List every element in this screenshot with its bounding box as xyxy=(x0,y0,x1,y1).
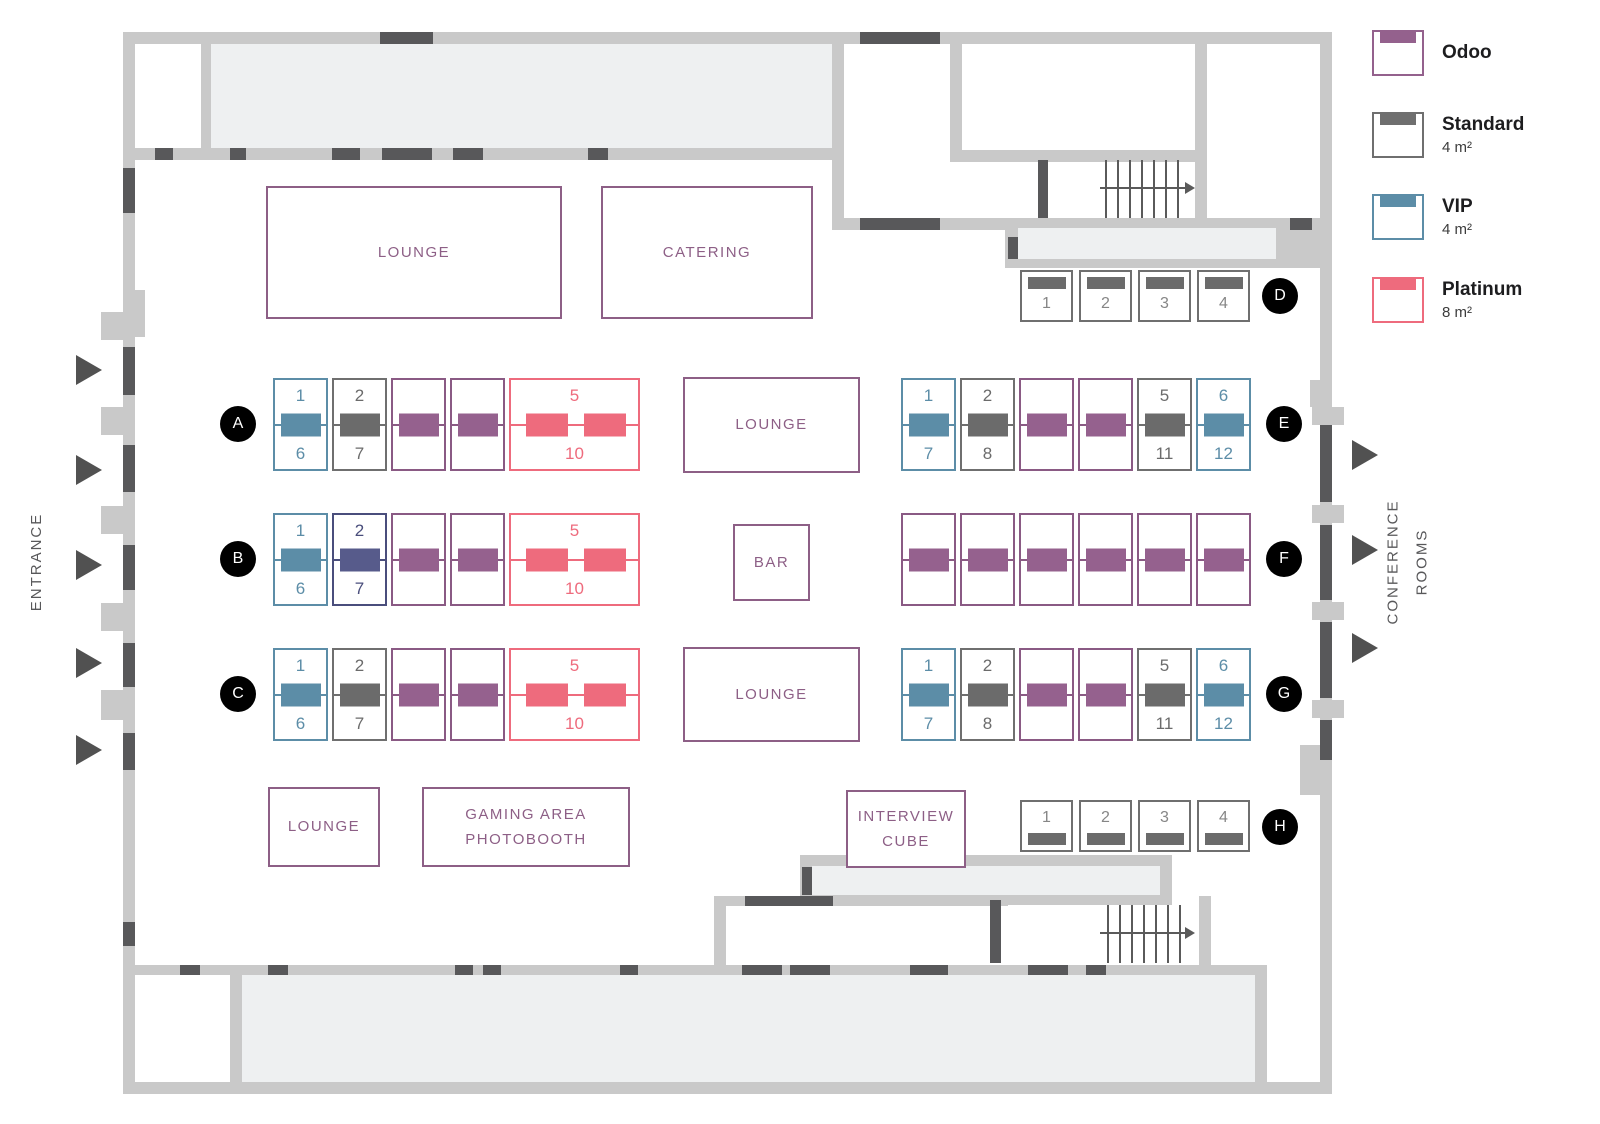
booth-number: 2 xyxy=(962,657,1013,674)
pillar xyxy=(101,407,135,435)
booth-g-6[interactable]: 612 xyxy=(1196,648,1251,741)
booth-number: 8 xyxy=(962,715,1013,732)
booth-f-odoo-5[interactable] xyxy=(1137,513,1192,606)
door-segment xyxy=(790,965,830,975)
door-segment xyxy=(230,148,246,160)
pillar xyxy=(101,603,135,631)
door-segment xyxy=(1086,965,1106,975)
conference-rooms-line1: CONFERENCE xyxy=(1380,499,1409,624)
booth-b-5[interactable]: 510 xyxy=(509,513,640,606)
row-badge-c: C xyxy=(220,676,256,712)
legend-size: 4 m² xyxy=(1442,139,1524,156)
booth-a-2[interactable]: 27 xyxy=(332,378,387,471)
booth-desk xyxy=(1204,548,1244,571)
booth-number: 1 xyxy=(903,387,954,404)
area-label: BAR xyxy=(754,550,789,576)
door-segment xyxy=(1320,622,1332,698)
wall-segment xyxy=(1255,965,1267,1082)
door-segment xyxy=(620,965,638,975)
area-gaming-photobooth: GAMING AREA PHOTOBOOTH xyxy=(422,787,630,867)
booth-b-odoo-4[interactable] xyxy=(450,513,505,606)
booth-desk xyxy=(1086,683,1126,706)
area-label: LOUNGE xyxy=(735,412,807,438)
booth-c-5[interactable]: 510 xyxy=(509,648,640,741)
booth-row-c: 1627510 xyxy=(273,648,640,741)
vip-booth-swatch-icon xyxy=(1372,194,1424,240)
booth-desk xyxy=(399,548,439,571)
booth-c-1[interactable]: 16 xyxy=(273,648,328,741)
booth-h3[interactable]: 3 xyxy=(1138,800,1191,852)
entrance-arrow-icon xyxy=(76,455,102,485)
area-label: LOUNGE xyxy=(735,682,807,708)
pillar xyxy=(101,690,135,720)
door-segment xyxy=(123,445,135,492)
booth-number: 3 xyxy=(1140,296,1189,312)
legend-item-standard: Standard 4 m² xyxy=(1372,112,1524,158)
booth-a-odoo-4[interactable] xyxy=(450,378,505,471)
booth-desk xyxy=(1205,833,1243,845)
booth-desk xyxy=(1027,548,1067,571)
door-segment xyxy=(1320,525,1332,600)
legend-label: Odoo xyxy=(1442,42,1492,64)
door-segment xyxy=(990,900,1001,963)
door-segment xyxy=(802,867,812,895)
door-segment xyxy=(180,965,200,975)
booth-number: 1 xyxy=(903,657,954,674)
booth-number: 4 xyxy=(1199,810,1248,826)
booth-desk xyxy=(399,683,439,706)
row-badge-d: D xyxy=(1262,278,1298,314)
booth-desk xyxy=(340,548,380,571)
pillar xyxy=(1310,380,1332,407)
booth-desk xyxy=(340,683,380,706)
booth-desk xyxy=(1204,413,1244,436)
pillar xyxy=(1312,407,1344,425)
door-segment xyxy=(123,733,135,770)
entrance-label: ENTRANCE xyxy=(23,513,52,612)
conference-rooms-label: CONFERENCE ROOMS xyxy=(1380,499,1437,624)
stairs-top-arrow xyxy=(1100,187,1186,189)
booth-number: 6 xyxy=(1198,387,1249,404)
booth-desk xyxy=(1146,277,1184,289)
booth-c-odoo-3[interactable] xyxy=(391,648,446,741)
booth-g-2[interactable]: 28 xyxy=(960,648,1015,741)
booth-desk xyxy=(1087,277,1125,289)
booth-e-odoo-3[interactable] xyxy=(1019,378,1074,471)
booth-number: 12 xyxy=(1198,715,1249,732)
booth-number: 4 xyxy=(1199,296,1248,312)
door-segment xyxy=(455,965,473,975)
row-badge-b: B xyxy=(220,541,256,577)
door-segment xyxy=(123,347,135,395)
wall-segment xyxy=(1195,44,1207,230)
odoo-booth-swatch-icon xyxy=(1372,30,1424,76)
booth-e-odoo-4[interactable] xyxy=(1078,378,1133,471)
entrance-arrow-icon xyxy=(76,735,102,765)
area-catering: CATERING xyxy=(601,186,813,319)
conference-arrow-icon xyxy=(1352,535,1378,565)
door-segment xyxy=(742,965,782,975)
legend-label: Standard xyxy=(1442,114,1524,136)
booth-number: 6 xyxy=(275,580,326,597)
booth-number: 2 xyxy=(962,387,1013,404)
booth-desk xyxy=(458,413,498,436)
door-segment xyxy=(910,965,948,975)
area-label: LOUNGE xyxy=(378,240,450,266)
pillar xyxy=(101,312,135,340)
wall-segment xyxy=(123,1082,1332,1094)
area-lounge-top: LOUNGE xyxy=(266,186,562,319)
door-segment xyxy=(268,965,288,975)
stairs-top xyxy=(1105,160,1179,218)
corridor xyxy=(812,866,1160,895)
wall-segment xyxy=(950,44,962,162)
booth-desk xyxy=(1086,413,1126,436)
area-lounge-mid-lower: LOUNGE xyxy=(683,647,860,742)
booth-number: 10 xyxy=(511,715,638,732)
door-segment xyxy=(453,148,483,160)
room-area xyxy=(211,44,832,148)
booth-number: 2 xyxy=(334,387,385,404)
floor-plan: ENTRANCE CONFERENCE ROOMS LOUNGE CATERIN… xyxy=(0,0,1600,1124)
area-interview-cube: INTERVIEW CUBE xyxy=(846,790,966,868)
booth-desk xyxy=(281,413,321,436)
wall-segment xyxy=(230,975,242,1082)
booth-g-1[interactable]: 17 xyxy=(901,648,956,741)
pillar xyxy=(1312,700,1344,718)
booth-desk xyxy=(1204,683,1244,706)
door-segment xyxy=(332,148,360,160)
stairs-bottom-arrow xyxy=(1100,932,1186,934)
booth-number: 1 xyxy=(1022,810,1071,826)
conference-arrow-icon xyxy=(1352,440,1378,470)
booth-number: 3 xyxy=(1140,810,1189,826)
booth-b-2[interactable]: 27 xyxy=(332,513,387,606)
booth-desk xyxy=(909,683,949,706)
legend-label: Platinum xyxy=(1442,279,1522,301)
row-badge-letter: F xyxy=(1279,550,1289,568)
booth-number: 6 xyxy=(1198,657,1249,674)
door-segment xyxy=(860,32,940,44)
booth-desk xyxy=(526,413,568,436)
booth-desk xyxy=(968,413,1008,436)
booth-f-odoo-3[interactable] xyxy=(1019,513,1074,606)
row-badge-a: A xyxy=(220,406,256,442)
booth-desk xyxy=(584,548,626,571)
booth-number: 5 xyxy=(511,657,638,674)
booth-desk xyxy=(1027,683,1067,706)
door-segment xyxy=(123,545,135,590)
area-lounge-mid-upper: LOUNGE xyxy=(683,377,860,473)
booth-row-d: 1234 xyxy=(1020,270,1250,322)
legend-size: 4 m² xyxy=(1442,221,1473,238)
booth-g-odoo-3[interactable] xyxy=(1019,648,1074,741)
booth-row-b: 1627510 xyxy=(273,513,640,606)
booth-d3[interactable]: 3 xyxy=(1138,270,1191,322)
booth-number: 6 xyxy=(275,715,326,732)
booth-f-odoo-4[interactable] xyxy=(1078,513,1133,606)
booth-number: 1 xyxy=(1022,296,1071,312)
pillar xyxy=(1312,505,1344,523)
booth-number: 5 xyxy=(1139,657,1190,674)
booth-number: 6 xyxy=(275,445,326,462)
booth-c-odoo-4[interactable] xyxy=(450,648,505,741)
area-label: PHOTOBOOTH xyxy=(465,827,586,853)
legend-label: VIP xyxy=(1442,196,1473,218)
booth-desk xyxy=(968,683,1008,706)
booth-b-1[interactable]: 16 xyxy=(273,513,328,606)
booth-desk xyxy=(340,413,380,436)
booth-desk xyxy=(584,683,626,706)
booth-h2[interactable]: 2 xyxy=(1079,800,1132,852)
room-area xyxy=(242,975,1255,1082)
booth-desk xyxy=(584,413,626,436)
row-badge-f: F xyxy=(1266,541,1302,577)
booth-desk xyxy=(526,683,568,706)
row-badge-letter: A xyxy=(233,415,244,433)
booth-desk xyxy=(1028,277,1066,289)
booth-number: 5 xyxy=(511,522,638,539)
booth-desk xyxy=(281,548,321,571)
booth-desk xyxy=(968,548,1008,571)
booth-number: 7 xyxy=(334,580,385,597)
door-segment xyxy=(380,32,433,44)
wall-segment xyxy=(201,44,211,148)
booth-desk xyxy=(399,413,439,436)
wall-segment xyxy=(1199,896,1211,975)
pillar xyxy=(101,506,135,534)
booth-row-f xyxy=(901,513,1251,606)
booth-e-6[interactable]: 612 xyxy=(1196,378,1251,471)
stairs-bottom xyxy=(1107,905,1181,963)
booth-row-e: 1728511612 xyxy=(901,378,1251,471)
booth-number: 1 xyxy=(275,387,326,404)
booth-number: 5 xyxy=(511,387,638,404)
booth-number: 7 xyxy=(903,715,954,732)
booth-number: 11 xyxy=(1139,445,1190,462)
area-label: CUBE xyxy=(882,829,930,855)
door-segment xyxy=(745,896,833,906)
door-segment xyxy=(155,148,173,160)
booth-number: 11 xyxy=(1139,715,1190,732)
booth-row-g: 1728511612 xyxy=(901,648,1251,741)
door-segment xyxy=(1320,425,1332,502)
booth-desk xyxy=(458,548,498,571)
booth-f-odoo-2[interactable] xyxy=(960,513,1015,606)
door-segment xyxy=(588,148,608,160)
booth-number: 12 xyxy=(1198,445,1249,462)
booth-d2[interactable]: 2 xyxy=(1079,270,1132,322)
door-segment xyxy=(1038,160,1048,218)
door-segment xyxy=(123,168,135,213)
booth-number: 7 xyxy=(903,445,954,462)
booth-desk xyxy=(1028,833,1066,845)
entrance-arrow-icon xyxy=(76,648,102,678)
entrance-arrow-icon xyxy=(76,355,102,385)
door-segment xyxy=(382,148,432,160)
door-segment xyxy=(483,965,501,975)
booth-number: 7 xyxy=(334,715,385,732)
booth-desk xyxy=(526,548,568,571)
conference-rooms-line2: ROOMS xyxy=(1408,499,1437,624)
booth-e-1[interactable]: 17 xyxy=(901,378,956,471)
corridor xyxy=(1018,228,1276,259)
row-badge-letter: B xyxy=(233,550,244,568)
booth-e-2[interactable]: 28 xyxy=(960,378,1015,471)
booth-number: 10 xyxy=(511,580,638,597)
door-segment xyxy=(1028,965,1068,975)
door-segment xyxy=(1320,720,1332,760)
booth-f-odoo-1[interactable] xyxy=(901,513,956,606)
booth-row-a: 1627510 xyxy=(273,378,640,471)
legend-item-odoo: Odoo xyxy=(1372,30,1492,76)
row-badge-e: E xyxy=(1266,406,1302,442)
booth-c-2[interactable]: 27 xyxy=(332,648,387,741)
booth-h1[interactable]: 1 xyxy=(1020,800,1073,852)
booth-a-5[interactable]: 510 xyxy=(509,378,640,471)
booth-b-odoo-3[interactable] xyxy=(391,513,446,606)
booth-a-1[interactable]: 16 xyxy=(273,378,328,471)
booth-desk xyxy=(909,413,949,436)
legend-item-platinum: Platinum 8 m² xyxy=(1372,277,1522,323)
wall-segment xyxy=(832,44,844,230)
booth-desk xyxy=(1087,833,1125,845)
row-badge-h: H xyxy=(1262,809,1298,845)
entrance-label-text: ENTRANCE xyxy=(23,513,52,612)
door-segment xyxy=(860,218,940,230)
door-segment xyxy=(123,922,135,946)
booth-number: 10 xyxy=(511,445,638,462)
booth-g-odoo-4[interactable] xyxy=(1078,648,1133,741)
row-badge-letter: H xyxy=(1274,818,1286,836)
booth-desk xyxy=(1145,683,1185,706)
area-label: CATERING xyxy=(663,240,751,266)
wall-segment xyxy=(714,896,726,975)
row-badge-letter: E xyxy=(1279,415,1290,433)
area-lounge-bottom: LOUNGE xyxy=(268,787,380,867)
booth-number: 1 xyxy=(275,657,326,674)
legend-item-vip: VIP 4 m² xyxy=(1372,194,1473,240)
platinum-booth-swatch-icon xyxy=(1372,277,1424,323)
row-badge-letter: G xyxy=(1278,685,1290,703)
booth-d4[interactable]: 4 xyxy=(1197,270,1250,322)
standard-booth-swatch-icon xyxy=(1372,112,1424,158)
booth-a-odoo-3[interactable] xyxy=(391,378,446,471)
booth-f-odoo-6[interactable] xyxy=(1196,513,1251,606)
conference-arrow-icon xyxy=(1352,633,1378,663)
booth-desk xyxy=(1146,833,1184,845)
booth-desk xyxy=(1086,548,1126,571)
entrance-arrow-icon xyxy=(76,550,102,580)
row-badge-letter: C xyxy=(232,685,244,703)
door-segment xyxy=(1290,218,1312,230)
booth-desk xyxy=(1027,413,1067,436)
booth-desk xyxy=(1145,548,1185,571)
booth-number: 5 xyxy=(1139,387,1190,404)
area-label: LOUNGE xyxy=(288,814,360,840)
booth-desk xyxy=(458,683,498,706)
door-segment xyxy=(1008,237,1018,259)
row-badge-letter: D xyxy=(1274,287,1286,305)
booth-number: 2 xyxy=(1081,810,1130,826)
booth-number: 2 xyxy=(334,522,385,539)
booth-number: 8 xyxy=(962,445,1013,462)
door-segment xyxy=(123,643,135,687)
area-label: GAMING AREA xyxy=(465,802,587,828)
wall-segment xyxy=(123,32,1332,44)
row-badge-g: G xyxy=(1266,676,1302,712)
booth-number: 2 xyxy=(334,657,385,674)
booth-desk xyxy=(1205,277,1243,289)
booth-d1[interactable]: 1 xyxy=(1020,270,1073,322)
area-bar: BAR xyxy=(733,524,810,601)
booth-desk xyxy=(909,548,949,571)
booth-e-5[interactable]: 511 xyxy=(1137,378,1192,471)
booth-desk xyxy=(281,683,321,706)
booth-number: 2 xyxy=(1081,296,1130,312)
area-label: INTERVIEW xyxy=(858,804,955,830)
booth-g-5[interactable]: 511 xyxy=(1137,648,1192,741)
legend-size: 8 m² xyxy=(1442,304,1522,321)
booth-h4[interactable]: 4 xyxy=(1197,800,1250,852)
booth-number: 7 xyxy=(334,445,385,462)
booth-row-h: 1234 xyxy=(1020,800,1250,852)
booth-number: 1 xyxy=(275,522,326,539)
pillar xyxy=(1312,602,1344,620)
booth-desk xyxy=(1145,413,1185,436)
